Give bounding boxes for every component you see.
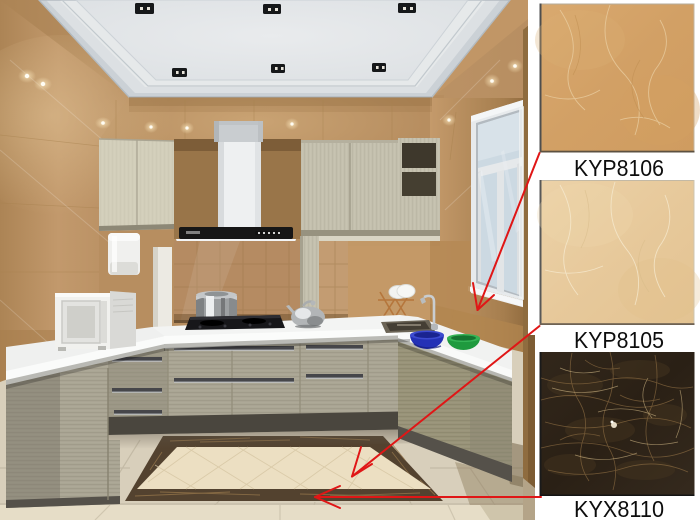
svg-text:KYP8106: KYP8106 [574,155,664,181]
svg-text:KYP8105: KYP8105 [574,327,664,353]
svg-text:KYX8110: KYX8110 [574,496,664,520]
